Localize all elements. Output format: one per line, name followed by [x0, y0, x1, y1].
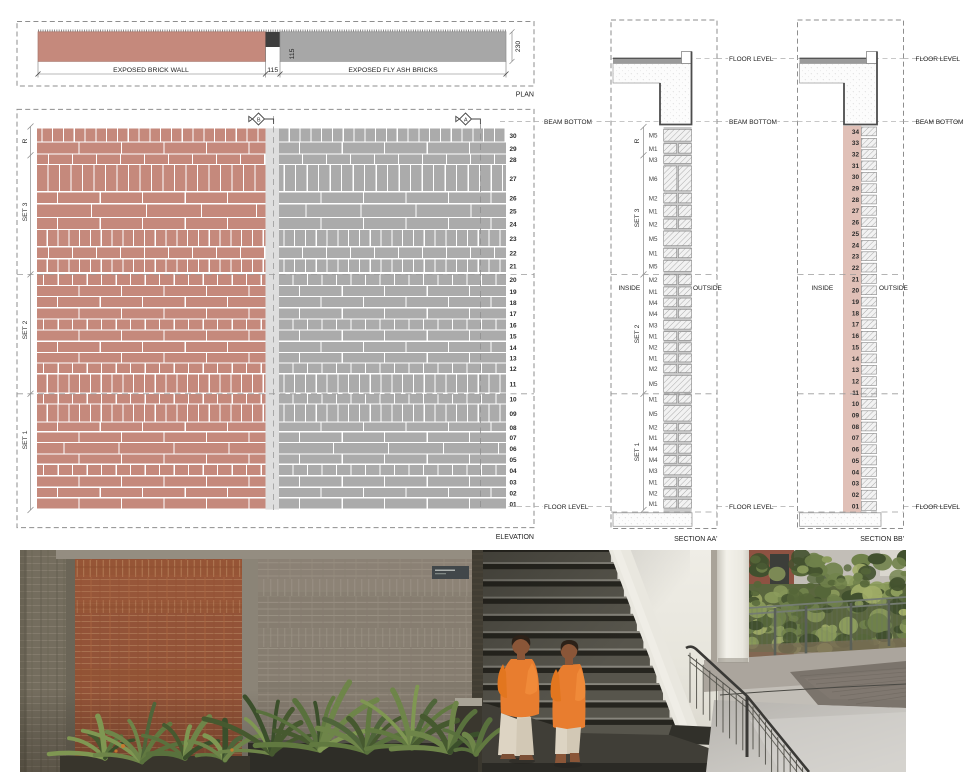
svg-text:16: 16	[852, 333, 860, 340]
svg-text:18: 18	[510, 300, 518, 307]
svg-text:23: 23	[510, 236, 518, 243]
svg-text:PLAN: PLAN	[516, 92, 534, 99]
svg-text:20: 20	[852, 288, 860, 295]
svg-text:29: 29	[510, 146, 518, 153]
svg-text:M1: M1	[649, 289, 658, 296]
svg-text:19: 19	[852, 299, 860, 306]
svg-text:R: R	[634, 138, 641, 143]
svg-text:25: 25	[510, 209, 518, 216]
svg-text:M1: M1	[649, 396, 658, 403]
svg-text:18: 18	[852, 310, 860, 317]
svg-text:28: 28	[852, 197, 860, 204]
svg-text:R: R	[22, 138, 29, 143]
svg-text:17: 17	[852, 322, 860, 329]
svg-text:M2: M2	[649, 221, 658, 228]
svg-text:INSIDE: INSIDE	[619, 285, 641, 292]
svg-text:B: B	[257, 118, 261, 124]
svg-text:10: 10	[852, 401, 860, 408]
svg-text:30: 30	[852, 174, 860, 181]
svg-text:M2: M2	[649, 425, 658, 432]
svg-text:01: 01	[510, 501, 518, 508]
svg-text:M6: M6	[649, 176, 658, 183]
svg-text:SET 2: SET 2	[634, 324, 641, 343]
svg-text:07: 07	[852, 435, 860, 442]
svg-text:BEAM BOTTOM: BEAM BOTTOM	[544, 119, 592, 126]
svg-text:09: 09	[510, 411, 518, 418]
svg-text:M2: M2	[649, 196, 658, 203]
svg-text:M1: M1	[649, 208, 658, 215]
svg-text:M3: M3	[649, 322, 658, 329]
svg-text:M3: M3	[649, 468, 658, 475]
svg-text:OUTSIDE: OUTSIDE	[693, 285, 723, 292]
svg-text:SET 2: SET 2	[22, 320, 29, 339]
svg-text:M1: M1	[649, 251, 658, 258]
svg-text:M5: M5	[649, 236, 658, 243]
svg-text:11: 11	[852, 390, 859, 397]
svg-text:21: 21	[852, 276, 860, 283]
svg-text:M1: M1	[649, 334, 658, 341]
svg-text:SET 3: SET 3	[22, 202, 29, 221]
svg-text:03: 03	[852, 481, 860, 488]
svg-text:31: 31	[852, 163, 860, 170]
svg-text:30: 30	[510, 133, 518, 140]
svg-text:05: 05	[852, 458, 860, 465]
svg-text:22: 22	[510, 251, 518, 258]
svg-text:M4: M4	[649, 446, 658, 453]
svg-text:03: 03	[510, 479, 518, 486]
svg-text:04: 04	[852, 469, 860, 476]
svg-text:M1: M1	[649, 479, 658, 486]
svg-text:21: 21	[510, 263, 518, 270]
svg-text:SECTION AA': SECTION AA'	[674, 536, 717, 543]
svg-text:09: 09	[852, 413, 860, 420]
svg-text:14: 14	[510, 345, 518, 352]
svg-text:SECTION BB': SECTION BB'	[860, 536, 904, 543]
svg-text:25: 25	[852, 231, 860, 238]
svg-text:15: 15	[510, 334, 518, 341]
svg-text:04: 04	[510, 468, 518, 475]
svg-text:230: 230	[515, 41, 522, 53]
svg-text:M5: M5	[649, 381, 658, 388]
svg-text:M4: M4	[649, 311, 658, 318]
svg-text:M2: M2	[649, 366, 658, 373]
svg-text:M4: M4	[649, 300, 658, 307]
svg-text:15: 15	[852, 344, 860, 351]
svg-text:INSIDE: INSIDE	[812, 285, 834, 292]
svg-text:BEAM BOTTOM: BEAM BOTTOM	[916, 119, 963, 126]
svg-text:M1: M1	[649, 501, 658, 508]
svg-text:M1: M1	[649, 435, 658, 442]
svg-text:FLOOR LEVEL: FLOOR LEVEL	[729, 504, 774, 511]
svg-text:16: 16	[510, 322, 518, 329]
svg-text:M2: M2	[649, 277, 658, 284]
svg-text:06: 06	[852, 447, 860, 454]
svg-text:M5: M5	[649, 263, 658, 270]
svg-text:27: 27	[852, 208, 860, 215]
svg-text:19: 19	[510, 289, 518, 296]
svg-text:11: 11	[510, 381, 517, 388]
svg-text:EXPOSED FLY ASH BRICKS: EXPOSED FLY ASH BRICKS	[348, 67, 438, 74]
svg-text:115: 115	[289, 48, 296, 59]
svg-text:SET 1: SET 1	[634, 442, 641, 461]
svg-text:FLOOR LEVEL: FLOOR LEVEL	[916, 504, 961, 511]
svg-text:FLOOR LEVEL: FLOOR LEVEL	[729, 56, 774, 63]
svg-text:17: 17	[510, 311, 518, 318]
svg-text:FLOOR LEVEL: FLOOR LEVEL	[916, 56, 961, 63]
svg-text:20: 20	[510, 277, 518, 284]
svg-text:08: 08	[510, 425, 518, 432]
svg-text:01: 01	[852, 503, 860, 510]
svg-text:M2: M2	[649, 490, 658, 497]
svg-text:24: 24	[510, 221, 518, 228]
svg-text:ELEVATION: ELEVATION	[496, 534, 534, 541]
svg-text:34: 34	[852, 129, 860, 136]
svg-text:23: 23	[852, 254, 860, 261]
svg-text:22: 22	[852, 265, 860, 272]
svg-text:24: 24	[852, 242, 860, 249]
svg-text:33: 33	[852, 140, 860, 147]
svg-text:14: 14	[852, 356, 860, 363]
svg-text:13: 13	[852, 367, 860, 374]
svg-text:32: 32	[852, 152, 860, 159]
svg-text:07: 07	[510, 435, 518, 442]
svg-text:M5: M5	[649, 411, 658, 418]
svg-text:FLOOR LEVEL: FLOOR LEVEL	[544, 504, 589, 511]
svg-text:12: 12	[510, 366, 518, 373]
svg-text:06: 06	[510, 446, 518, 453]
svg-text:SET 3: SET 3	[634, 208, 641, 227]
svg-text:M1: M1	[649, 146, 658, 153]
svg-text:115: 115	[267, 67, 278, 74]
svg-text:M3: M3	[649, 157, 658, 164]
svg-text:12: 12	[852, 379, 860, 386]
svg-text:OUTSIDE: OUTSIDE	[879, 285, 909, 292]
svg-text:27: 27	[510, 176, 518, 183]
svg-text:M2: M2	[649, 345, 658, 352]
svg-text:M4: M4	[649, 457, 658, 464]
svg-text:02: 02	[510, 490, 518, 497]
svg-text:10: 10	[510, 397, 518, 404]
svg-text:SET 1: SET 1	[22, 430, 29, 449]
svg-text:A: A	[464, 118, 468, 124]
svg-text:26: 26	[852, 220, 860, 227]
svg-text:02: 02	[852, 492, 860, 499]
svg-text:M1: M1	[649, 355, 658, 362]
svg-text:BEAM BOTTOM: BEAM BOTTOM	[729, 119, 777, 126]
svg-text:08: 08	[852, 424, 860, 431]
svg-text:M5: M5	[649, 133, 658, 140]
svg-text:26: 26	[510, 196, 518, 203]
svg-text:13: 13	[510, 356, 518, 363]
svg-text:28: 28	[510, 157, 518, 164]
svg-text:EXPOSED BRICK WALL: EXPOSED BRICK WALL	[113, 67, 189, 74]
svg-text:05: 05	[510, 457, 518, 464]
svg-text:29: 29	[852, 186, 860, 193]
